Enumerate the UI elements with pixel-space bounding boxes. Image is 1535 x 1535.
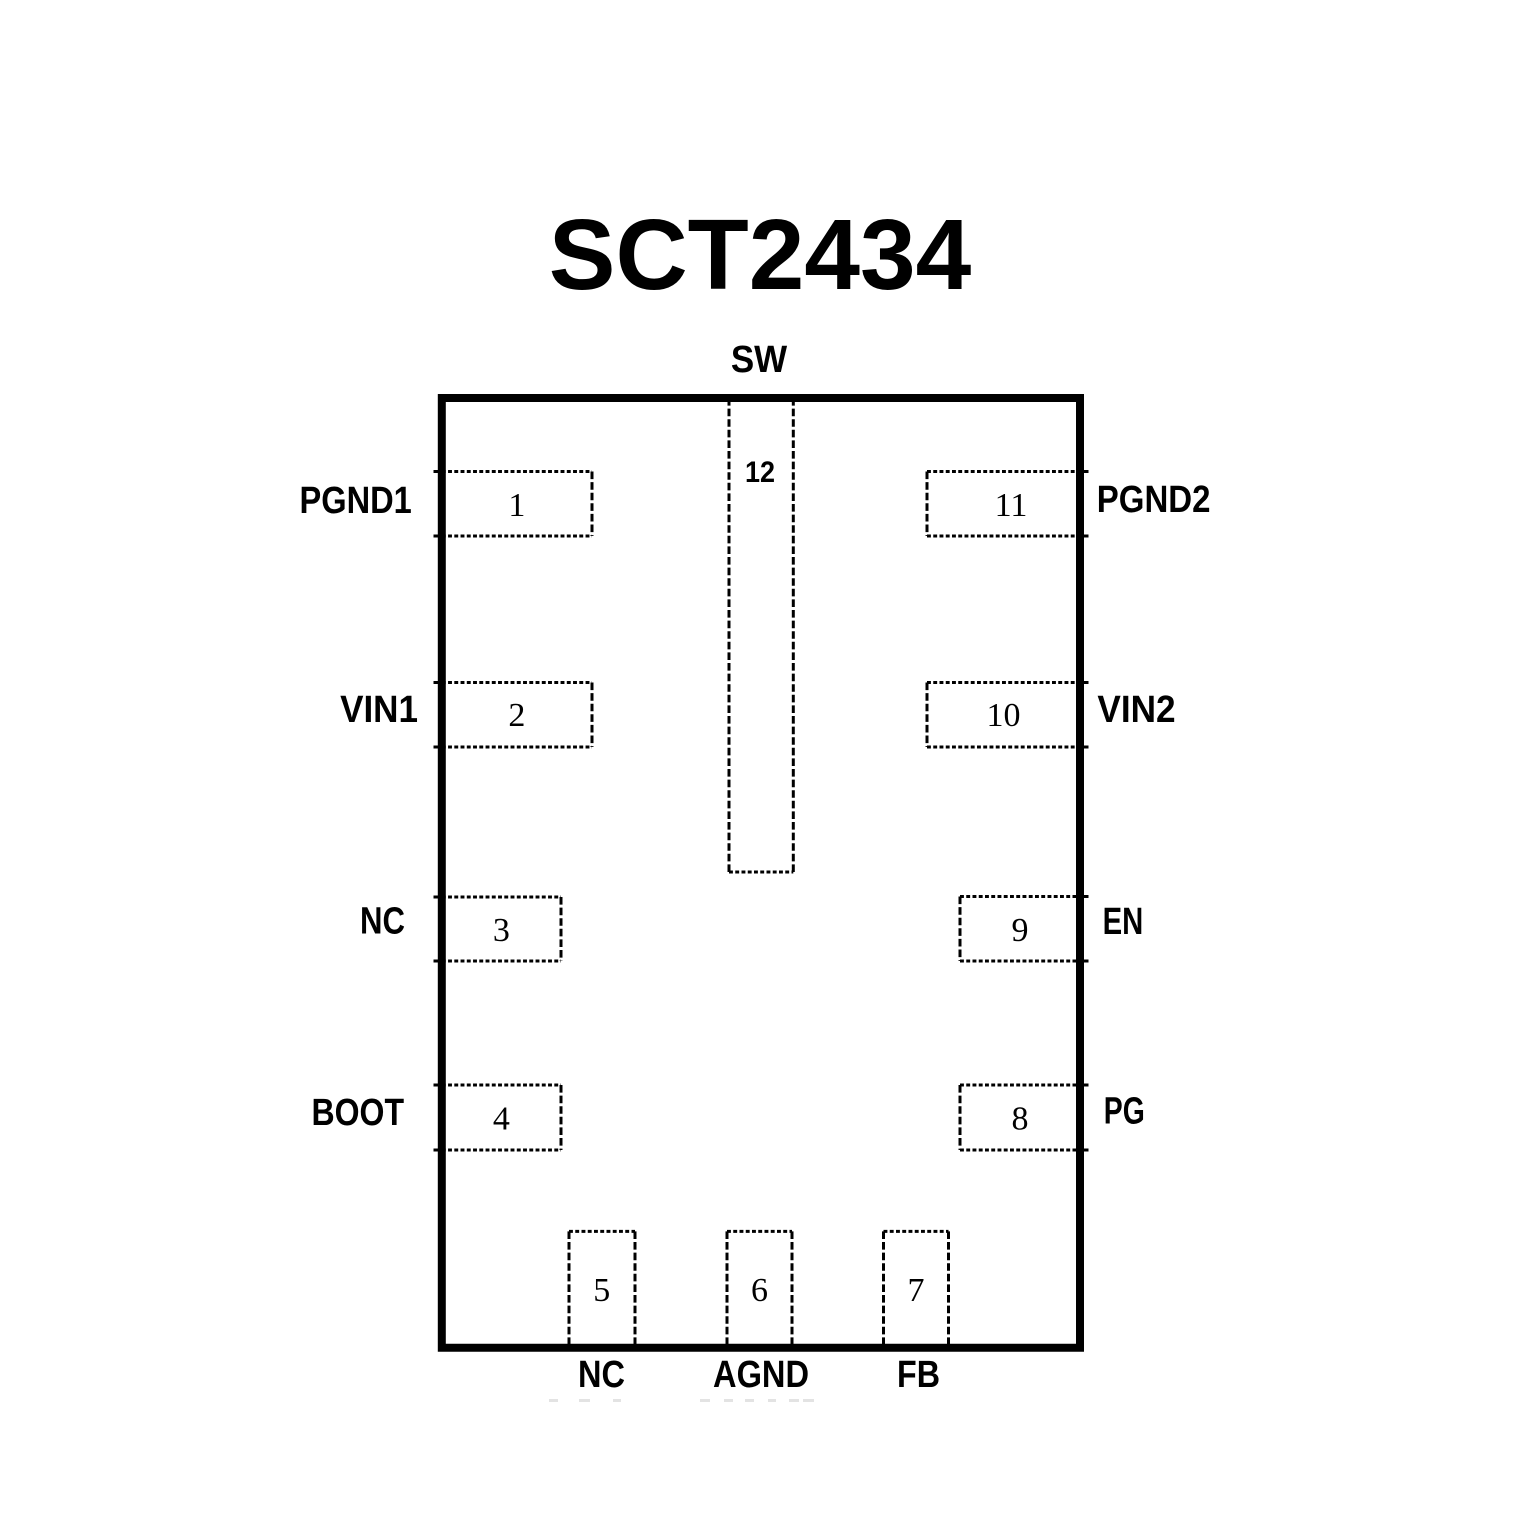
svg-text:9: 9 [1012, 912, 1029, 949]
svg-text:PGND2: PGND2 [1097, 478, 1211, 521]
svg-text:7: 7 [908, 1272, 925, 1309]
svg-text:10: 10 [987, 697, 1021, 734]
svg-text:PG: PG [1104, 1091, 1145, 1133]
svg-text:8: 8 [1012, 1101, 1029, 1138]
svg-text:1: 1 [508, 487, 525, 524]
svg-text:11: 11 [995, 487, 1028, 524]
svg-text:NC: NC [578, 1354, 625, 1396]
svg-text:3: 3 [493, 912, 510, 949]
svg-text:5: 5 [593, 1272, 610, 1309]
svg-text:NC: NC [360, 901, 405, 943]
svg-text:BOOT: BOOT [312, 1091, 405, 1133]
svg-text:EN: EN [1103, 900, 1144, 943]
svg-text:4: 4 [493, 1101, 510, 1138]
svg-text:PGND1: PGND1 [300, 479, 412, 522]
svg-text:SCT2434: SCT2434 [549, 199, 972, 311]
svg-text:FB: FB [897, 1354, 940, 1396]
svg-text:2: 2 [508, 697, 525, 734]
svg-text:12: 12 [745, 456, 775, 490]
svg-text:AGND: AGND [713, 1353, 809, 1396]
svg-text:VIN2: VIN2 [1097, 688, 1175, 731]
svg-text:SW: SW [731, 338, 788, 381]
svg-text:6: 6 [751, 1272, 768, 1309]
svg-text:VIN1: VIN1 [340, 688, 418, 731]
